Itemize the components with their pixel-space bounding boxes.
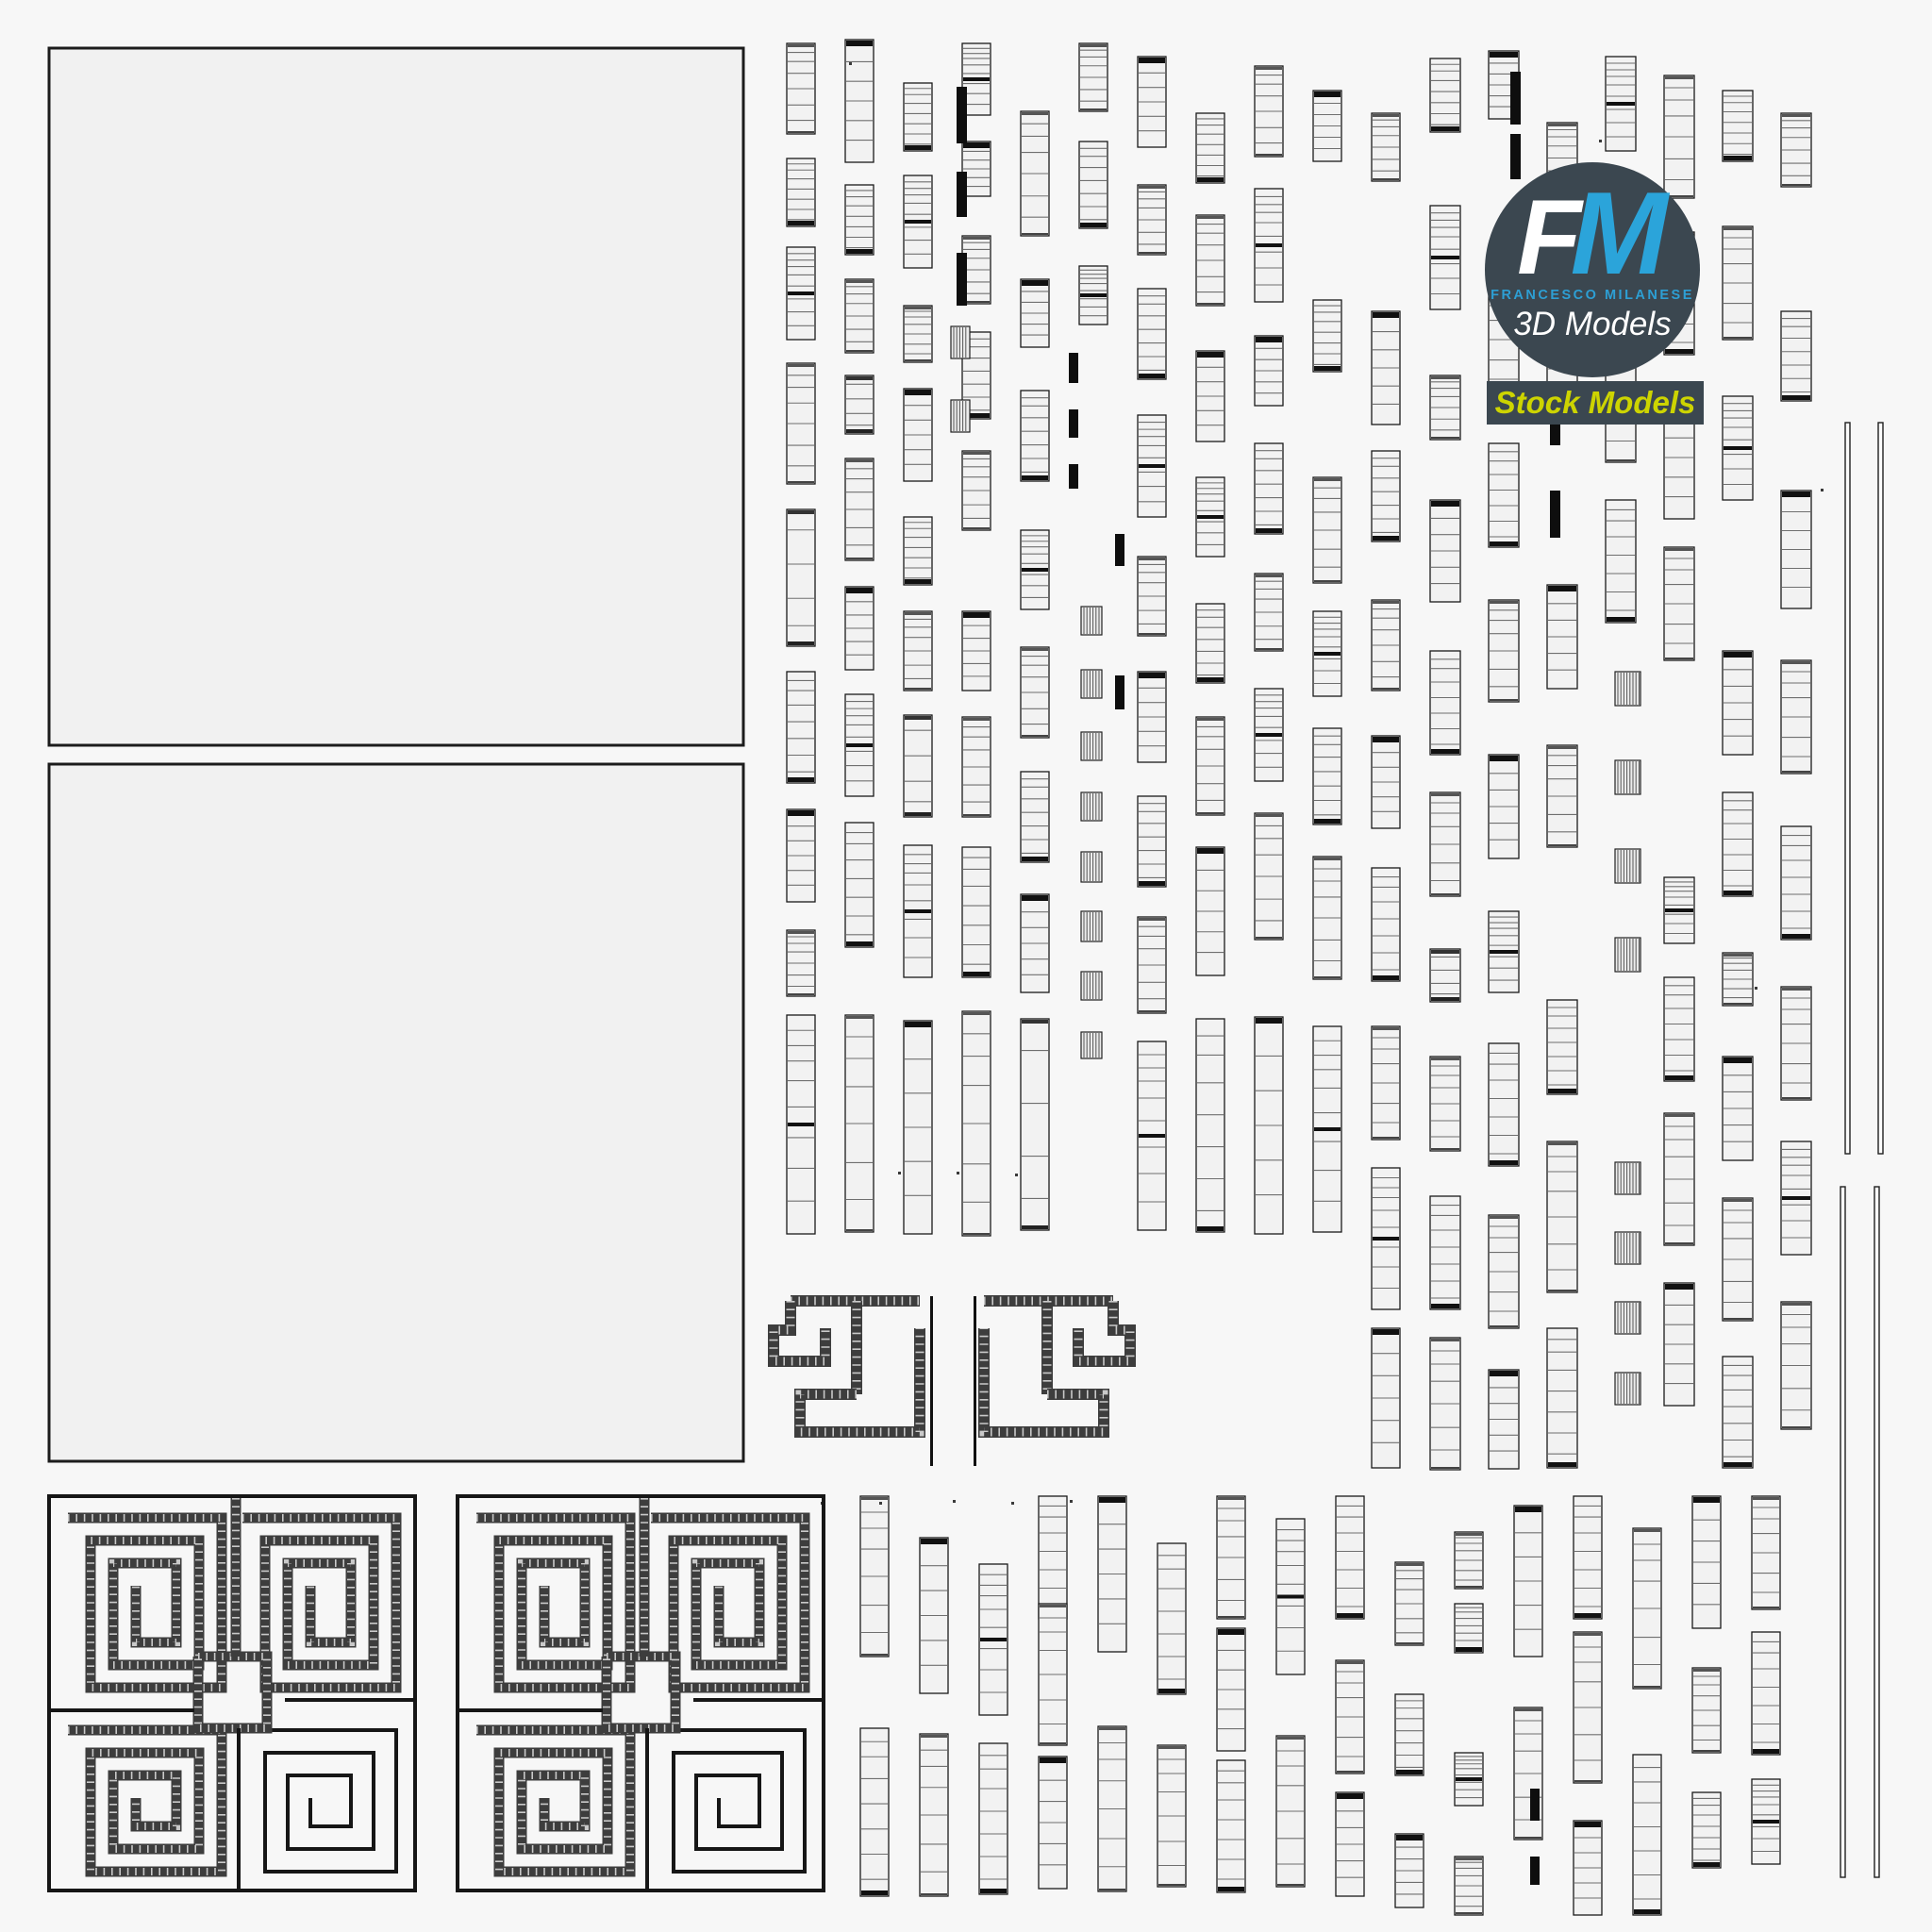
uv-island-accent	[1753, 1749, 1779, 1754]
uv-island-accent	[846, 1016, 873, 1019]
uv-island-accent	[1431, 501, 1459, 507]
uv-dot	[879, 1502, 882, 1505]
uv-island-accent	[788, 481, 814, 483]
uv-island	[1079, 142, 1108, 228]
uv-island-accent	[1396, 1770, 1423, 1774]
uv-island-accent	[1022, 1020, 1048, 1024]
uv-island-accent	[1158, 1689, 1185, 1693]
uv-island-accent	[1724, 1199, 1752, 1202]
uv-island-accent	[1634, 1686, 1660, 1688]
uv-island-accent	[1456, 1777, 1482, 1781]
uv-island-accent	[1753, 1497, 1779, 1500]
logo-subtitle: 3D Models	[1513, 306, 1671, 343]
uv-hatch-box	[1615, 849, 1641, 883]
uv-island-accent	[1256, 814, 1282, 817]
uv-island-accent	[1277, 1595, 1304, 1599]
uv-island-accent	[1782, 1303, 1810, 1306]
uv-dash	[1069, 353, 1078, 383]
uv-hatch-box	[1615, 1232, 1641, 1264]
uv-island-accent	[1314, 819, 1341, 824]
uv-island-accent	[1139, 374, 1165, 378]
uv-island-accent	[1099, 1889, 1125, 1890]
uv-island	[1021, 772, 1049, 862]
uv-island-accent	[963, 237, 990, 240]
uv-island-accent	[1277, 1884, 1304, 1886]
uv-island	[1138, 289, 1166, 379]
uv-island-accent	[905, 359, 931, 361]
uv-island-accent	[1373, 114, 1399, 117]
uv-island-accent	[1139, 1134, 1165, 1138]
uv-island-accent	[1197, 216, 1224, 219]
uv-island-accent	[1693, 1750, 1720, 1752]
uv-island-accent	[788, 777, 814, 782]
uv-island	[904, 83, 932, 151]
uv-island-accent	[1373, 312, 1399, 318]
uv-dash	[1115, 534, 1124, 566]
uv-dot	[1015, 1174, 1018, 1176]
uv-island-accent	[1314, 652, 1341, 656]
uv-island-accent	[1080, 223, 1107, 227]
uv-island-accent	[1197, 848, 1224, 854]
uv-island	[1336, 1496, 1364, 1619]
uv-long-strip	[1874, 1187, 1879, 1877]
uv-island-accent	[1139, 464, 1165, 468]
uv-dot	[1599, 140, 1602, 142]
uv-island-accent	[1218, 1616, 1244, 1618]
uv-island-accent	[1431, 997, 1459, 1001]
uv-island-accent	[1373, 1027, 1399, 1030]
uv-island-accent	[1634, 1909, 1660, 1914]
uv-island-accent	[846, 429, 873, 433]
uv-island-accent	[788, 810, 814, 816]
uv-island-accent	[1574, 1780, 1601, 1782]
uv-island-accent	[1607, 617, 1635, 622]
uv-island-accent	[846, 350, 873, 352]
uv-island-accent	[861, 1890, 888, 1895]
uv-dash	[1069, 464, 1078, 489]
uv-island-accent	[1022, 233, 1048, 235]
maze-spiral	[242, 1730, 396, 1872]
uv-island-accent	[980, 1889, 1007, 1893]
uv-island-accent	[1665, 76, 1693, 79]
uv-island-accent	[846, 1229, 873, 1231]
uv-island-accent	[1431, 1304, 1459, 1308]
uv-island-accent	[788, 44, 814, 47]
uv-island	[860, 1728, 889, 1896]
uv-island-accent	[1693, 1497, 1720, 1503]
uv-island-accent	[788, 641, 814, 645]
uv-island-accent	[1080, 108, 1107, 110]
uv-island-accent	[846, 941, 873, 946]
uv-hatch-box	[1615, 938, 1641, 972]
uv-island-accent	[1490, 52, 1518, 58]
uv-island-accent	[1456, 1912, 1482, 1914]
uv-island-accent	[905, 812, 931, 816]
uv-island-accent	[1197, 515, 1224, 519]
uv-island	[845, 185, 874, 255]
uv-island-accent	[905, 1022, 931, 1027]
uv-island-accent	[1490, 601, 1518, 604]
uv-island-accent	[1515, 1708, 1541, 1711]
uv-island-accent	[1022, 857, 1048, 861]
uv-island-accent	[788, 221, 814, 225]
uv-island-accent	[1256, 648, 1282, 650]
uv-island-accent	[1431, 749, 1459, 754]
uv-island	[1723, 91, 1753, 161]
uv-island-accent	[1724, 337, 1752, 339]
uv-island-accent	[1548, 124, 1576, 126]
uv-island-accent	[846, 376, 873, 380]
uv-island-accent	[1782, 114, 1810, 117]
uv-island-accent	[1634, 1529, 1660, 1532]
uv-island	[962, 847, 991, 977]
uv-island-accent	[1158, 1884, 1185, 1886]
uv-island-accent	[1548, 1089, 1576, 1093]
uv-island-accent	[1574, 1633, 1601, 1636]
uv-island	[1217, 1760, 1245, 1892]
uv-island-accent	[846, 558, 873, 559]
maze-spiral	[68, 1730, 222, 1872]
uv-island-accent	[1396, 1563, 1423, 1566]
uv-island	[1723, 792, 1753, 896]
uv-island-accent	[1080, 293, 1107, 297]
uv-island-accent	[1277, 1737, 1304, 1740]
uv-island-accent	[1040, 1757, 1066, 1763]
uv-island-accent	[1724, 1058, 1752, 1063]
uv-island-accent	[1256, 937, 1282, 939]
uv-dash	[1510, 134, 1521, 179]
uv-island-accent	[1431, 1339, 1459, 1341]
uv-long-strip	[1840, 1187, 1845, 1877]
uv-island-accent	[788, 931, 814, 934]
uv-island-accent	[1022, 280, 1048, 286]
uv-island-accent	[1665, 1075, 1693, 1080]
uv-island-accent	[1574, 1613, 1601, 1618]
uv-long-strip	[1845, 423, 1850, 1154]
uv-island-accent	[963, 718, 990, 721]
uv-island	[1781, 311, 1811, 401]
uv-island-accent	[1782, 661, 1810, 664]
uv-island-accent	[1218, 1497, 1244, 1500]
uv-island	[1021, 391, 1049, 481]
uv-island	[1196, 1019, 1224, 1232]
uv-island-accent	[1373, 737, 1399, 742]
uv-island-accent	[1724, 891, 1752, 895]
uv-island	[1430, 651, 1460, 755]
uv-island-accent	[1373, 601, 1399, 604]
uv-island	[1313, 300, 1341, 372]
uv-island-accent	[1665, 349, 1693, 354]
uv-island-accent	[1724, 1003, 1752, 1005]
uv-island-accent	[788, 1123, 814, 1126]
uv-island-accent	[1724, 446, 1752, 450]
uv-island-accent	[921, 1735, 947, 1738]
fm-letter-m: M	[1571, 169, 1668, 299]
uv-island	[1372, 868, 1400, 981]
uv-island-accent	[1099, 1727, 1125, 1730]
logo-author-name: FRANCESCO MILANESE	[1491, 288, 1694, 303]
uv-island-accent	[1665, 1284, 1693, 1290]
uv-island-accent	[788, 510, 814, 514]
uv-island-accent	[1515, 1837, 1541, 1839]
uv-island-accent	[1782, 1196, 1810, 1200]
uv-dot	[898, 1172, 901, 1174]
uv-island-accent	[905, 307, 931, 309]
uv-island-accent	[1022, 648, 1048, 651]
uv-island-accent	[1022, 735, 1048, 737]
uv-island-accent	[1139, 252, 1165, 254]
uv-island-accent	[1665, 658, 1693, 659]
uv-island-accent	[963, 1012, 990, 1015]
uv-island-accent	[1782, 988, 1810, 991]
uv-island	[1395, 1694, 1424, 1775]
uv-island-accent	[1724, 227, 1752, 230]
uv-island-accent	[1314, 366, 1341, 371]
uv-island-accent	[1373, 975, 1399, 980]
uv-dot	[1011, 1502, 1014, 1505]
uv-island-accent	[846, 249, 873, 254]
uv-island-accent	[1607, 459, 1635, 461]
uv-island-accent	[963, 527, 990, 529]
uv-island-accent	[1431, 1148, 1459, 1150]
uv-island-accent	[1456, 1857, 1482, 1860]
uv-hatch-box	[1615, 672, 1641, 706]
uv-island-accent	[1724, 156, 1752, 160]
uv-island-accent	[1022, 112, 1048, 115]
uv-island	[1489, 1043, 1519, 1166]
uv-island	[1752, 1632, 1780, 1755]
uv-island-accent	[1337, 1661, 1363, 1664]
uv-long-strip	[1878, 423, 1883, 1154]
uv-island	[1664, 977, 1694, 1081]
uv-island-accent	[1753, 1607, 1779, 1608]
uv-island-accent	[1490, 1371, 1518, 1376]
uv-island-accent	[1490, 699, 1518, 701]
maze-spiral	[476, 1730, 630, 1872]
uv-island-accent	[1431, 256, 1459, 259]
uv-island-accent	[1431, 793, 1459, 796]
uv-island	[979, 1743, 1008, 1894]
uv-island-accent	[1782, 184, 1810, 186]
uv-dash	[1115, 675, 1124, 709]
fm-logo-circle: FM FRANCESCO MILANESE 3D Models	[1485, 162, 1700, 377]
uv-island-accent	[1665, 1242, 1693, 1244]
uv-island-accent	[1256, 733, 1282, 737]
uv-island-accent	[905, 579, 931, 584]
maze-spiral	[651, 1730, 805, 1872]
uv-island-accent	[1607, 102, 1635, 106]
uv-island-accent	[1490, 1216, 1518, 1219]
uv-island-accent	[1396, 1642, 1423, 1644]
greek-key-strip	[774, 1301, 825, 1361]
uv-island-accent	[1314, 1127, 1341, 1131]
uv-island-accent	[1396, 1835, 1423, 1840]
uv-island-accent	[1373, 688, 1399, 690]
uv-island-accent	[1431, 1467, 1459, 1469]
uv-island-accent	[905, 390, 931, 395]
uv-island-accent	[1139, 58, 1165, 63]
uv-dash	[957, 172, 967, 217]
uv-island-accent	[980, 1638, 1007, 1641]
uv-island-accent	[1337, 1771, 1363, 1773]
uv-island-accent	[1040, 1742, 1066, 1744]
uv-island	[1489, 443, 1519, 547]
uv-island	[1255, 443, 1283, 534]
uv-dash	[1069, 409, 1078, 438]
uv-island-accent	[1139, 1010, 1165, 1012]
uv-island-accent	[1724, 652, 1752, 658]
uv-hatch-box	[1615, 1373, 1641, 1405]
uv-island-accent	[1022, 895, 1048, 901]
uv-dash	[957, 253, 967, 306]
uv-island-accent	[1431, 376, 1459, 379]
greek-key-line	[974, 1296, 976, 1466]
greek-key-strip	[1078, 1301, 1130, 1361]
uv-island-accent	[788, 364, 814, 367]
uv-island-accent	[921, 1893, 947, 1895]
uv-island	[1547, 1328, 1577, 1468]
uv-island-accent	[846, 743, 873, 747]
stock-models-label: Stock Models	[1495, 385, 1696, 421]
uv-island-accent	[1431, 126, 1459, 131]
uv-island-accent	[963, 301, 990, 303]
uv-island-accent	[1314, 580, 1341, 582]
uv-hatch-box	[1615, 760, 1641, 794]
uv-island	[1039, 1496, 1067, 1619]
uv-island-accent	[1256, 243, 1282, 247]
uv-island-accent	[1782, 1097, 1810, 1099]
uv-dot	[849, 62, 852, 65]
uv-island	[1781, 826, 1811, 940]
uv-island-accent	[1197, 177, 1224, 182]
uv-island-accent	[1724, 954, 1752, 957]
uv-island-accent	[963, 1233, 990, 1235]
uv-island	[1430, 58, 1460, 132]
uv-island-accent	[1431, 950, 1459, 954]
uv-island-accent	[1158, 1746, 1185, 1749]
uv-island	[1430, 1196, 1460, 1309]
uv-island-accent	[1693, 1669, 1720, 1672]
uv-panel	[49, 48, 743, 745]
uv-island-accent	[846, 41, 873, 46]
uv-island-accent	[1139, 673, 1165, 678]
uv-island-accent	[1337, 1793, 1363, 1799]
uv-dot	[957, 1172, 959, 1174]
uv-dash	[1510, 72, 1521, 125]
uv-island-accent	[1548, 1142, 1576, 1145]
uv-island-accent	[1753, 1820, 1779, 1824]
uv-dash	[957, 87, 967, 143]
uv-island-accent	[1724, 1318, 1752, 1320]
uv-island	[1158, 1543, 1186, 1694]
uv-island	[1633, 1755, 1661, 1915]
uv-island-accent	[1197, 677, 1224, 682]
uv-island-accent	[1431, 1058, 1459, 1060]
uv-island-accent	[1431, 893, 1459, 895]
uv-island-accent	[1139, 918, 1165, 921]
uv-island-accent	[963, 452, 990, 455]
uv-island-accent	[1724, 1462, 1752, 1467]
uv-island-accent	[1256, 154, 1282, 156]
uv-island-accent	[1218, 1629, 1244, 1635]
uv-island	[1372, 451, 1400, 541]
uv-island	[1574, 1496, 1602, 1619]
uv-island-accent	[1782, 395, 1810, 400]
uv-island-accent	[1022, 568, 1048, 572]
uv-island-accent	[1665, 908, 1693, 912]
uv-island-accent	[1373, 178, 1399, 180]
uv-island-accent	[1022, 1225, 1048, 1229]
uv-island-accent	[921, 1539, 947, 1544]
uv-island-accent	[1218, 1887, 1244, 1891]
uv-island-accent	[1782, 1426, 1810, 1428]
uv-island-accent	[1490, 950, 1518, 954]
uv-island-accent	[1139, 881, 1165, 886]
uv-island-accent	[1782, 491, 1810, 497]
uv-island-accent	[1256, 575, 1282, 577]
uv-island-accent	[1197, 303, 1224, 305]
uv-island	[787, 158, 815, 226]
uv-island-accent	[1314, 858, 1341, 860]
uv-island-accent	[1490, 1325, 1518, 1327]
uv-island-accent	[1456, 1533, 1482, 1536]
uv-island-accent	[1456, 1647, 1482, 1652]
uv-island-accent	[963, 77, 990, 81]
uv-island-accent	[1314, 976, 1341, 978]
uv-island-accent	[963, 612, 990, 618]
fm-monogram: FM	[1517, 183, 1668, 286]
uv-island-accent	[1080, 44, 1107, 47]
uv-island-accent	[1782, 771, 1810, 773]
uv-island-accent	[1693, 1862, 1720, 1867]
uv-island	[1455, 1604, 1483, 1653]
uv-island-accent	[905, 220, 931, 224]
uv-island-accent	[905, 612, 931, 615]
uv-dash	[1530, 1857, 1540, 1885]
uv-dash	[1530, 1789, 1540, 1821]
uv-island-accent	[1197, 352, 1224, 358]
uv-island-accent	[1040, 1605, 1066, 1607]
uv-island-accent	[1456, 1586, 1482, 1588]
uv-island	[845, 823, 874, 947]
uv-island-accent	[1099, 1497, 1125, 1503]
uv-island-accent	[1256, 337, 1282, 342]
uv-island-accent	[1197, 812, 1224, 814]
uv-island	[1547, 1000, 1577, 1094]
uv-island-accent	[1256, 1018, 1282, 1024]
uv-island	[1606, 500, 1636, 623]
uv-island-accent	[846, 280, 873, 283]
uv-island	[1692, 1792, 1721, 1868]
greek-key-line	[930, 1296, 933, 1466]
uv-island-accent	[861, 1497, 888, 1500]
uv-island-accent	[1139, 633, 1165, 635]
uv-island-accent	[1548, 1290, 1576, 1291]
uv-island-accent	[963, 972, 990, 976]
uv-island-accent	[1256, 528, 1282, 533]
uv-island	[787, 672, 815, 783]
uv-island-accent	[1574, 1822, 1601, 1827]
uv-hatch-box	[1615, 1162, 1641, 1194]
uv-island	[1723, 1357, 1753, 1468]
uv-island-accent	[1490, 541, 1518, 546]
uv-island-accent	[788, 993, 814, 995]
uv-island-accent	[1373, 536, 1399, 541]
uv-island	[1138, 796, 1166, 887]
stock-models-badge: Stock Models	[1487, 381, 1704, 425]
uv-dot	[1070, 1500, 1073, 1503]
uv-dot	[1755, 987, 1757, 990]
